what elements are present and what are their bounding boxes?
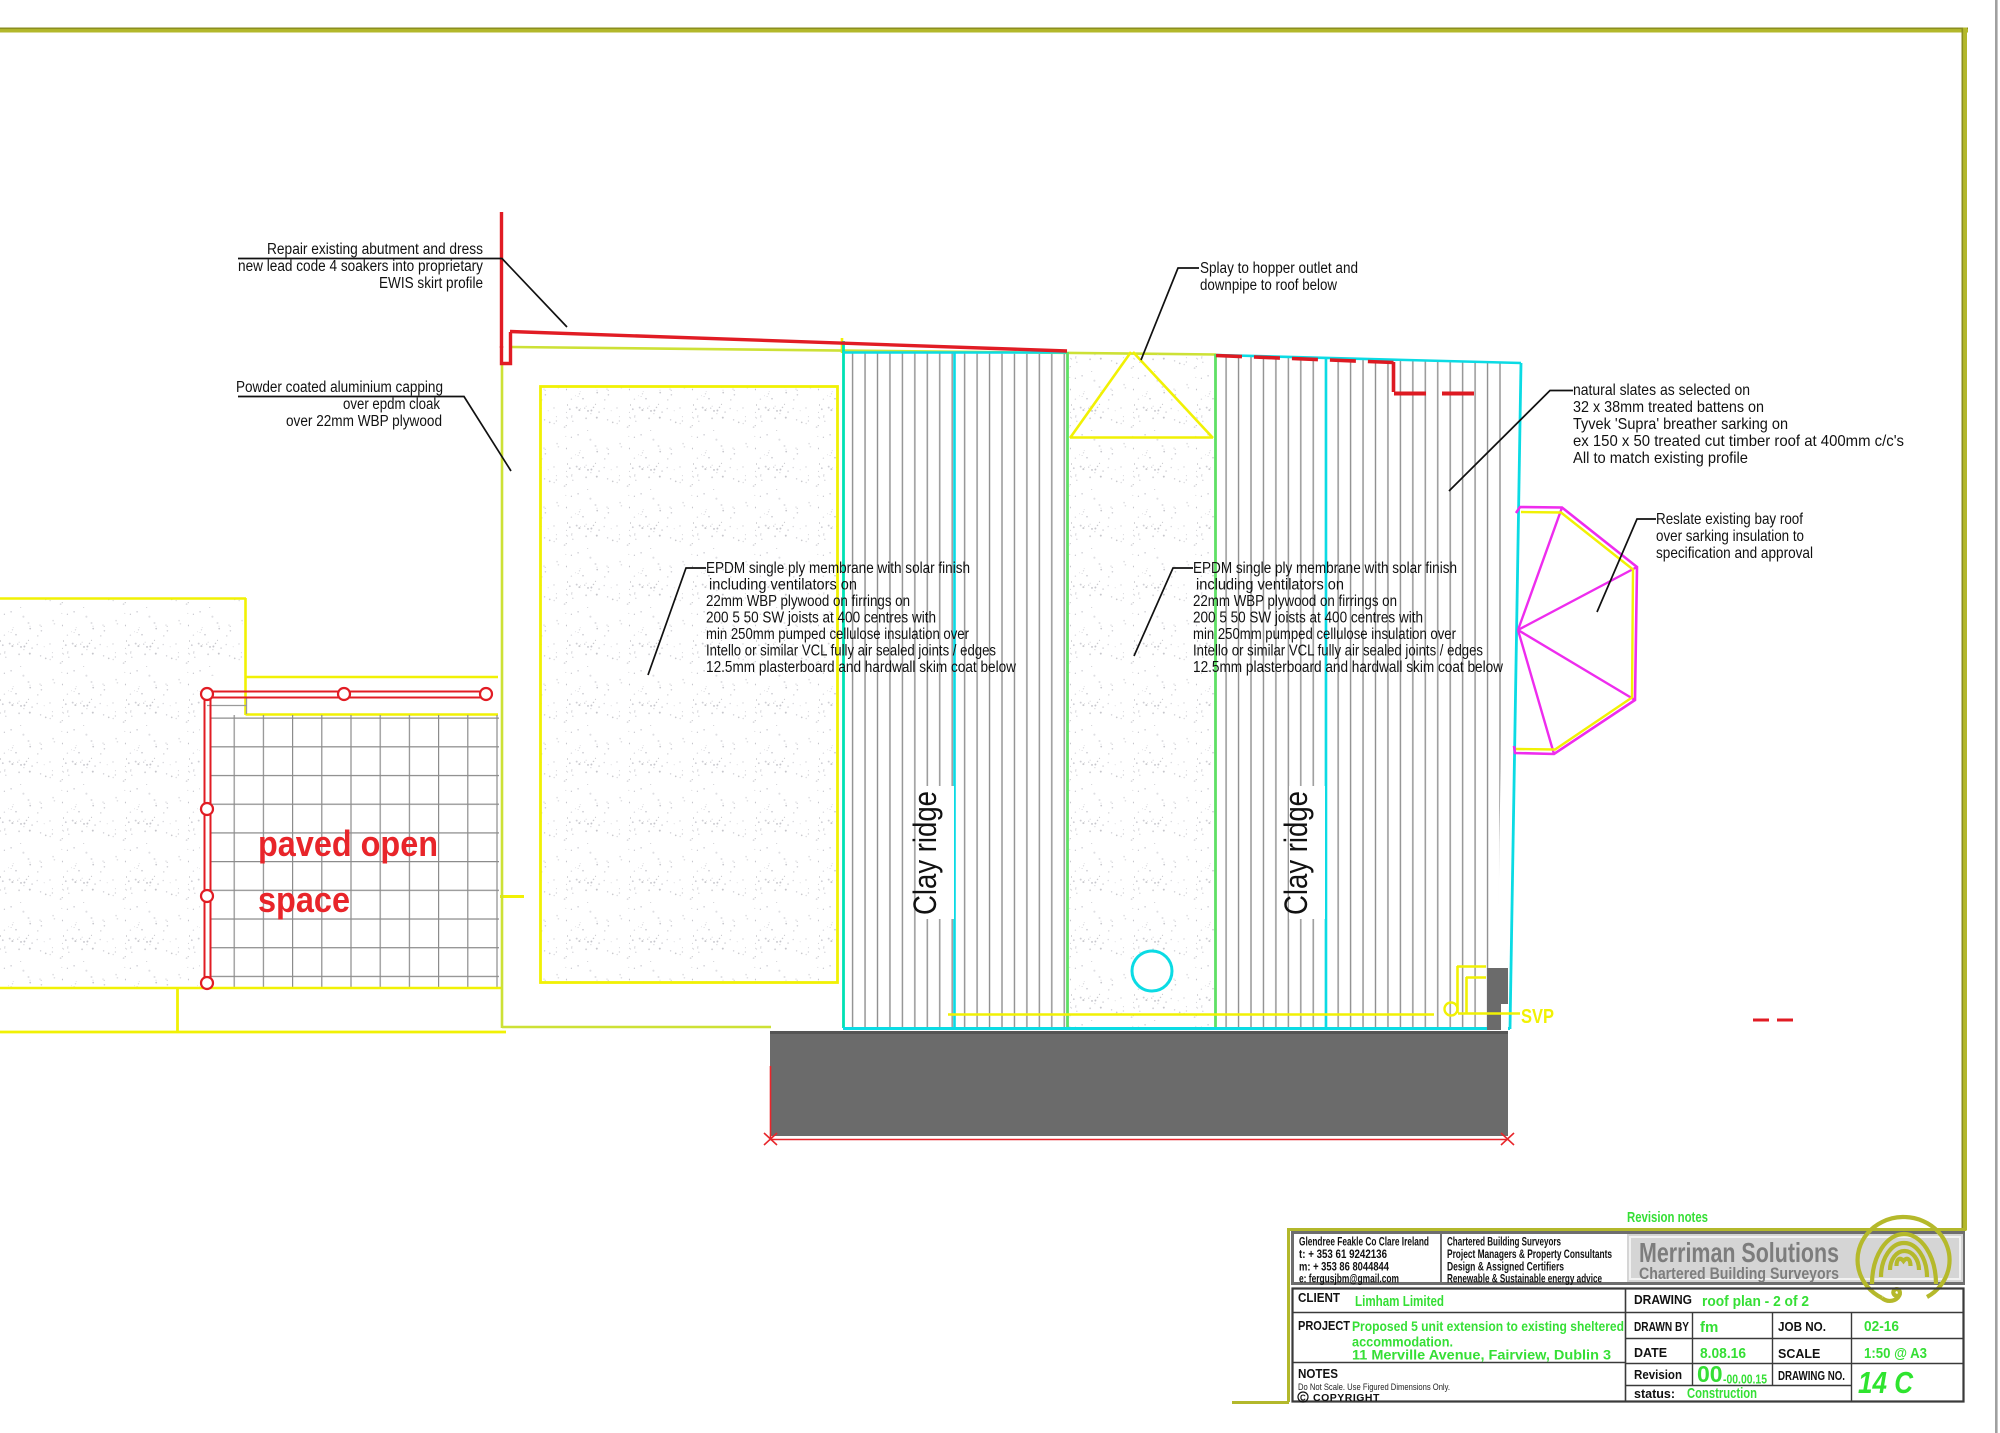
svg-text:Tyvek 'Supra' breather sarking: Tyvek 'Supra' breather sarking on bbox=[1573, 416, 1788, 433]
svg-text:DRAWING: DRAWING bbox=[1634, 1293, 1692, 1307]
svg-text:DATE: DATE bbox=[1634, 1346, 1667, 1360]
svg-text:All to match existing profile: All to match existing profile bbox=[1573, 450, 1748, 467]
svg-text:JOB NO.: JOB NO. bbox=[1778, 1320, 1826, 1334]
svg-text:12.5mm plasterboard and hardwa: 12.5mm plasterboard and hardwall skim co… bbox=[706, 659, 1017, 676]
svg-text:m: + 353 86 8044844: m: + 353 86 8044844 bbox=[1299, 1262, 1389, 1274]
svg-text:EWIS skirt profile: EWIS skirt profile bbox=[379, 275, 483, 292]
svg-text:Limham Limited: Limham Limited bbox=[1355, 1293, 1444, 1310]
svg-text:space: space bbox=[258, 879, 350, 920]
svg-text:Construction: Construction bbox=[1687, 1385, 1757, 1402]
svg-text:Design & Assigned Certifiers: Design & Assigned Certifiers bbox=[1447, 1262, 1564, 1274]
svg-text:Revision notes: Revision notes bbox=[1627, 1209, 1708, 1226]
svg-text:Intello or similar VCL fully a: Intello or similar VCL fully air sealed … bbox=[1193, 643, 1483, 660]
svg-text:200 5 50 SW joists at 400 cent: 200 5 50 SW joists at 400 centres with bbox=[1193, 610, 1423, 627]
svg-text:8.08.16: 8.08.16 bbox=[1700, 1345, 1746, 1362]
svg-text:including ventilators on: including ventilators on bbox=[709, 577, 857, 594]
svg-text:Chartered Building Surveyors: Chartered Building Surveyors bbox=[1447, 1237, 1561, 1249]
svg-text:status:: status: bbox=[1634, 1387, 1675, 1401]
svg-text:Project Managers & Property Co: Project Managers & Property Consultants bbox=[1447, 1249, 1612, 1261]
svg-text:200 5 50 SW joists at 400 cent: 200 5 50 SW joists at 400 centres with bbox=[706, 610, 936, 627]
svg-text:32 x 38mm treated battens on: 32 x 38mm treated battens on bbox=[1573, 399, 1764, 416]
svg-text:paved open: paved open bbox=[258, 823, 438, 864]
svg-text:Glendree Feakle Co Clare Irela: Glendree Feakle Co Clare Ireland bbox=[1299, 1237, 1429, 1249]
svg-text:02-16: 02-16 bbox=[1864, 1318, 1899, 1335]
svg-text:new lead code 4 soakers into p: new lead code 4 soakers into proprietary bbox=[238, 258, 483, 275]
svg-text:min 250mm pumped cellulose ins: min 250mm pumped cellulose insulation ov… bbox=[1193, 626, 1456, 643]
svg-text:downpipe to roof below: downpipe to roof below bbox=[1200, 277, 1338, 294]
svg-text:min 250mm pumped cellulose ins: min 250mm pumped cellulose insulation ov… bbox=[706, 626, 969, 643]
svg-text:DRAWN BY: DRAWN BY bbox=[1634, 1320, 1690, 1334]
svg-text:NOTES: NOTES bbox=[1298, 1367, 1338, 1381]
svg-text:over sarking insulation to: over sarking insulation to bbox=[1656, 528, 1804, 545]
svg-text:00: 00 bbox=[1697, 1361, 1723, 1387]
svg-text:Reslate existing bay roof: Reslate existing bay roof bbox=[1656, 511, 1803, 528]
svg-text:natural slates as selected on: natural slates as selected on bbox=[1573, 382, 1750, 399]
svg-text:C: C bbox=[1300, 1394, 1306, 1403]
svg-text:PROJECT: PROJECT bbox=[1298, 1319, 1350, 1333]
svg-text:EPDM single ply membrane with: EPDM single ply membrane with solar fini… bbox=[1193, 560, 1457, 577]
svg-text:ex 150 x 50 treated cut timber: ex 150 x 50 treated cut timber roof at 4… bbox=[1573, 433, 1904, 450]
svg-text:CLIENT: CLIENT bbox=[1298, 1291, 1340, 1305]
svg-text:12.5mm plasterboard and hardwa: 12.5mm plasterboard and hardwall skim co… bbox=[1193, 659, 1504, 676]
svg-text:t: + 353 61 9242136: t: + 353 61 9242136 bbox=[1299, 1249, 1387, 1261]
svg-text:Intello or similar VCL fully a: Intello or similar VCL fully air sealed … bbox=[706, 643, 996, 660]
svg-text:over 22mm WBP plywood: over 22mm WBP plywood bbox=[286, 413, 442, 430]
svg-text:including ventilators on: including ventilators on bbox=[1196, 577, 1344, 594]
svg-text:COPYRIGHT: COPYRIGHT bbox=[1313, 1392, 1380, 1404]
svg-text:22mm WBP plywood on firrings o: 22mm WBP plywood on firrings on bbox=[1193, 593, 1397, 610]
svg-text:Repair existing abutment and d: Repair existing abutment and dress bbox=[267, 241, 483, 258]
svg-text:SCALE: SCALE bbox=[1778, 1347, 1820, 1361]
svg-text:Clay ridge: Clay ridge bbox=[1278, 791, 1314, 915]
svg-text:Chartered Building Surveyors: Chartered Building Surveyors bbox=[1639, 1264, 1839, 1283]
svg-text:SVP: SVP bbox=[1521, 1006, 1554, 1028]
svg-text:Renewable & Sustainable energy: Renewable & Sustainable energy advice bbox=[1447, 1274, 1602, 1286]
svg-text:specification and approval: specification and approval bbox=[1656, 545, 1813, 562]
svg-text:EPDM single ply membrane with: EPDM single ply membrane with solar fini… bbox=[706, 560, 970, 577]
svg-text:22mm WBP plywood on firrings o: 22mm WBP plywood on firrings on bbox=[706, 593, 910, 610]
svg-text:Clay ridge: Clay ridge bbox=[907, 791, 943, 915]
svg-text:Proposed 5 unit extension to e: Proposed 5 unit extension to existing sh… bbox=[1352, 1318, 1624, 1334]
svg-text:Powder coated aluminium cappin: Powder coated aluminium capping bbox=[236, 379, 443, 396]
svg-text:roof plan - 2 of 2: roof plan - 2 of 2 bbox=[1702, 1293, 1809, 1310]
svg-text:e: fergusjbm@gmail.com: e: fergusjbm@gmail.com bbox=[1299, 1274, 1399, 1286]
svg-text:Revision: Revision bbox=[1634, 1368, 1682, 1382]
svg-text:DRAWING NO.: DRAWING NO. bbox=[1778, 1369, 1845, 1383]
svg-text:Splay to hopper outlet and: Splay to hopper outlet and bbox=[1200, 260, 1358, 277]
svg-text:fm: fm bbox=[1700, 1319, 1718, 1336]
svg-text:11 Merville Avenue, Fairview,: 11 Merville Avenue, Fairview, Dublin 3 bbox=[1352, 1347, 1611, 1363]
svg-text:over epdm cloak: over epdm cloak bbox=[343, 396, 440, 413]
svg-text:14 C: 14 C bbox=[1858, 1365, 1914, 1400]
svg-text:1:50 @ A3: 1:50 @ A3 bbox=[1864, 1345, 1927, 1362]
